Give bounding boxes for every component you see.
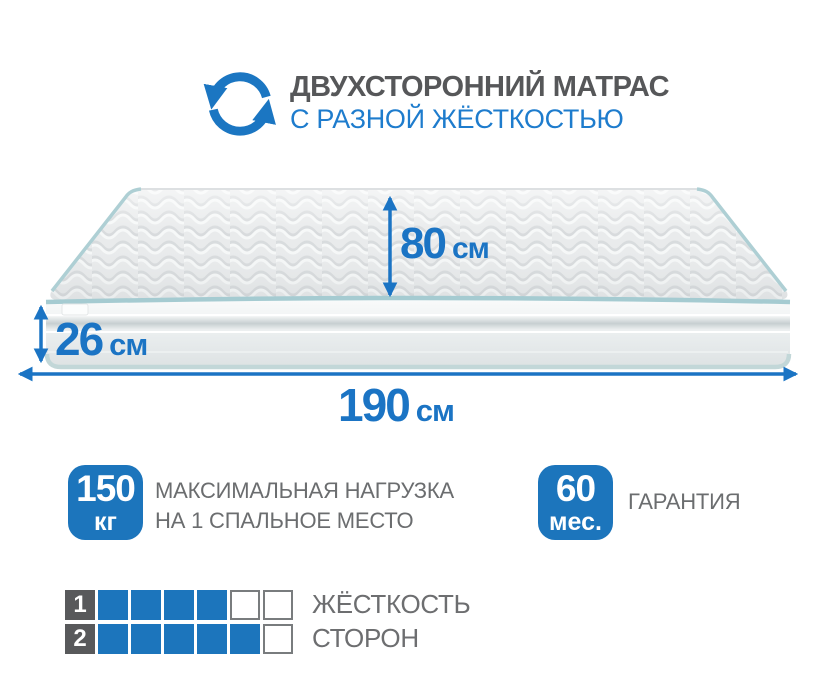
firmness-side-number: 1 [65,590,95,620]
firmness-cell-filled [131,624,161,654]
length-dimension-label: 190см [0,382,804,428]
warranty-badge: 60 мес. [538,465,613,540]
max-load-description-line1: МАКСИМАЛЬНАЯ НАГРУЗКА [155,476,454,506]
max-load-unit: кг [94,510,117,535]
firmness-cells-side2 [98,624,293,654]
firmness-cell-filled [197,624,227,654]
firmness-cell-filled [197,590,227,620]
firmness-row-side2: 2 СТОРОН [65,623,470,654]
height-dimension-label: 26см [55,316,147,362]
firmness-cell-filled [164,590,194,620]
firmness-label-line1: ЖЁСТКОСТЬ [312,589,470,620]
firmness-side-number: 2 [65,624,95,654]
max-load-badge: 150 кг [68,465,143,540]
max-load-description-line2: НА 1 СПАЛЬНОЕ МЕСТО [155,506,454,536]
firmness-cell-empty [230,590,260,620]
height-unit: см [109,327,147,362]
firmness-label-line2: СТОРОН [312,623,419,654]
depth-dimension-label: 80см [400,222,489,266]
firmness-cell-filled [230,624,260,654]
warranty-label: ГАРАНТИЯ [628,487,740,517]
mattress-side-band [46,317,790,330]
firmness-cell-empty [263,624,293,654]
firmness-cells-side1 [98,590,293,620]
firmness-cell-filled [131,590,161,620]
firmness-cell-filled [164,624,194,654]
depth-unit: см [452,232,489,265]
firmness-scale: 1 ЖЁСТКОСТЬ 2 СТОРОН [65,589,470,654]
length-unit: см [416,393,454,428]
firmness-row-side1: 1 ЖЁСТКОСТЬ [65,589,470,620]
length-value: 190 [338,379,409,431]
mattress-infographic: ДВУХСТОРОННИЙ МАТРАС С РАЗНОЙ ЖЁСТКОСТЬЮ [0,0,816,700]
height-value: 26 [55,313,102,365]
firmness-cell-filled [98,590,128,620]
warranty-unit: мес. [549,510,602,535]
firmness-cell-empty [263,590,293,620]
firmness-cell-filled [98,624,128,654]
max-load-description: МАКСИМАЛЬНАЯ НАГРУЗКА НА 1 СПАЛЬНОЕ МЕСТ… [155,476,454,536]
warranty-value: 60 [556,470,595,507]
max-load-value: 150 [76,470,135,507]
depth-value: 80 [400,219,445,268]
